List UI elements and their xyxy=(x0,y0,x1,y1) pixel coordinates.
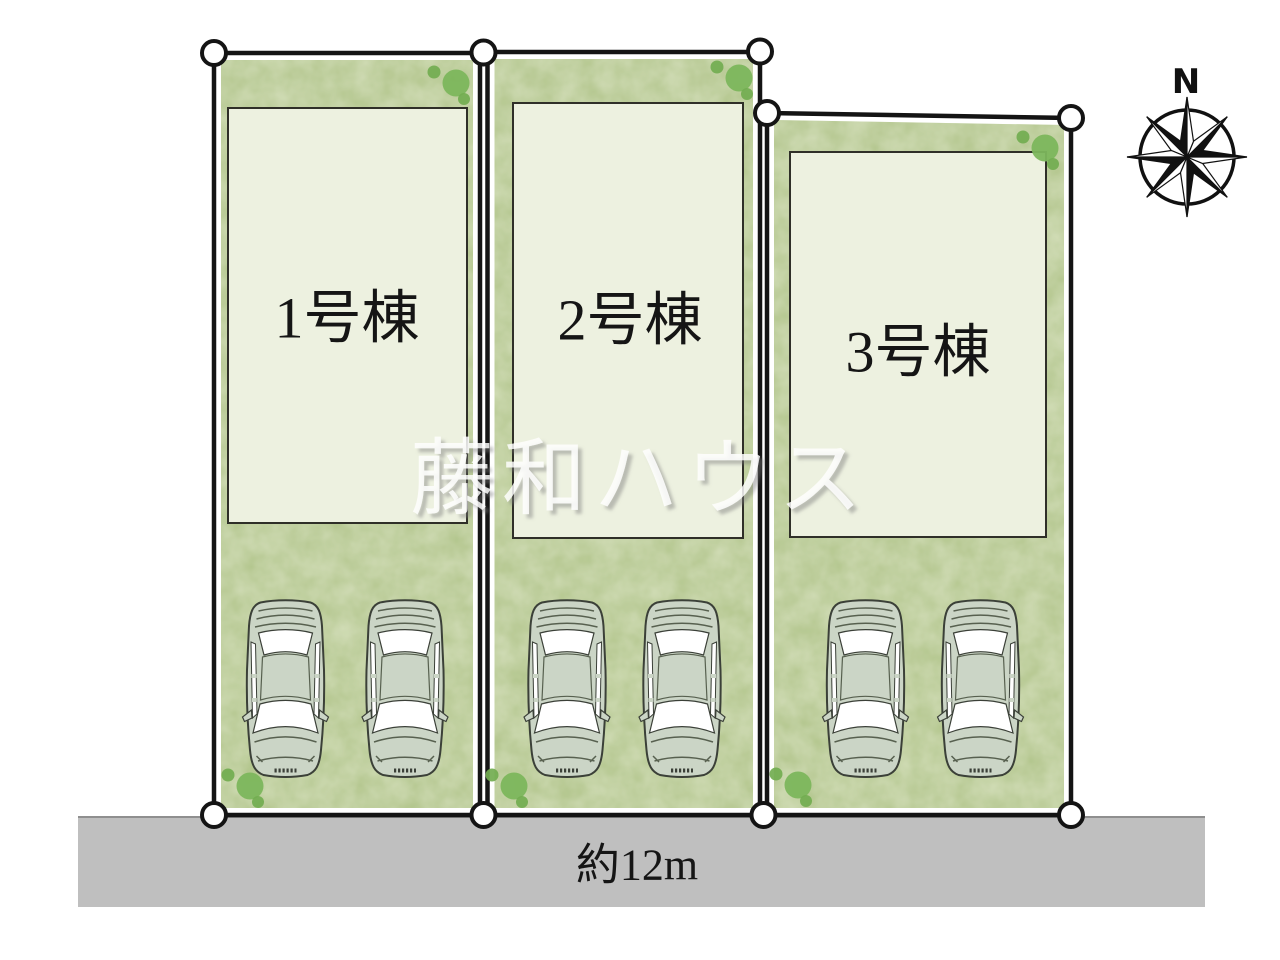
corner-marker xyxy=(1059,106,1083,130)
compass-north-label: N xyxy=(1172,62,1200,102)
corner-marker xyxy=(752,803,776,827)
compass-cardinal-points xyxy=(1127,97,1247,217)
watermark: 藤和ハウス xyxy=(410,434,870,527)
road: 約12m xyxy=(78,817,1205,907)
corner-marker xyxy=(1059,803,1083,827)
car-top-view xyxy=(362,600,448,777)
car-top-view xyxy=(243,600,329,777)
building-3-label: 3号棟 xyxy=(845,320,990,385)
car-top-view xyxy=(938,600,1024,777)
corner-marker xyxy=(202,41,226,65)
car-top-view xyxy=(823,600,909,777)
building-1-label: 1号棟 xyxy=(274,286,419,351)
car-top-view xyxy=(639,600,725,777)
corner-marker xyxy=(748,40,772,64)
site-plan-canvas: 約12m 1号棟 2号棟 3号棟 xyxy=(0,0,1280,960)
car-top-view xyxy=(524,600,610,777)
compass-rose: N xyxy=(1127,62,1247,217)
corner-marker xyxy=(202,803,226,827)
road-width-label: 約12m xyxy=(576,841,698,890)
corner-marker xyxy=(472,803,496,827)
building-2-label: 2号棟 xyxy=(557,288,702,353)
corner-marker xyxy=(472,41,496,65)
corner-marker xyxy=(755,101,779,125)
site-plan: 約12m 1号棟 2号棟 3号棟 xyxy=(0,0,1280,960)
